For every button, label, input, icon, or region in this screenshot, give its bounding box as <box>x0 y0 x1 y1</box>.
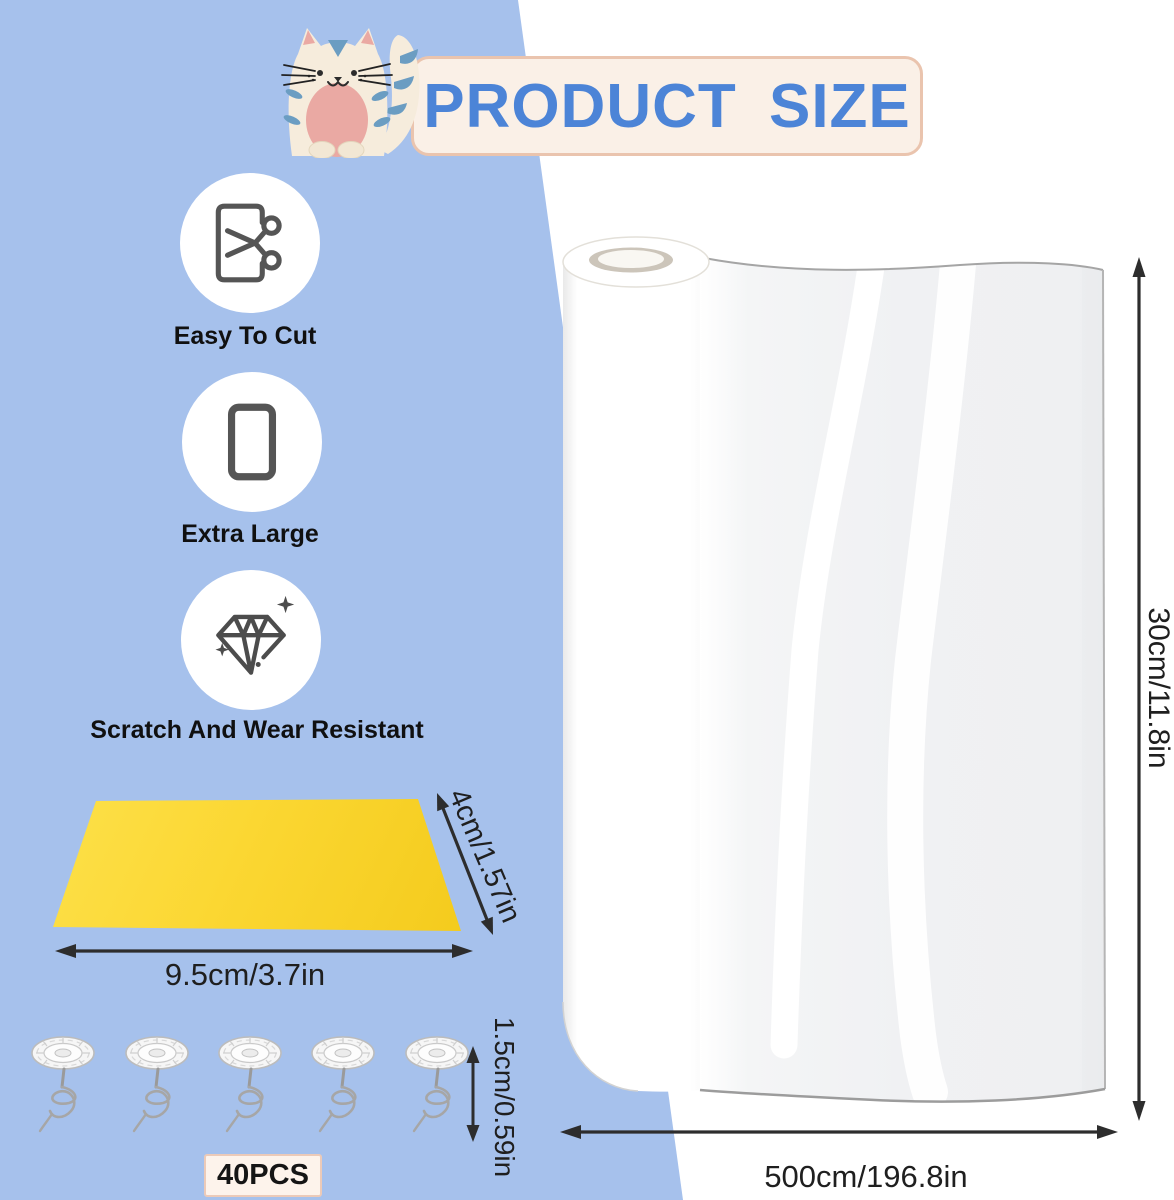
scissors-cut-icon <box>204 197 296 289</box>
push-pin <box>126 1037 188 1131</box>
feature-label-easy-to-cut: Easy To Cut <box>174 322 317 351</box>
roll-length-label: 500cm/196.8in <box>764 1159 967 1195</box>
push-pin <box>219 1037 281 1131</box>
push-pin <box>32 1037 94 1131</box>
feature-label-scratch-resistant: Scratch And Wear Resistant <box>90 716 423 745</box>
page-title: PRODUCT SIZE <box>423 71 911 142</box>
product-size-infographic: PRODUCT SIZE <box>0 0 1174 1200</box>
roll-top <box>563 237 709 287</box>
roll-height-label: 30cm/11.8in <box>1141 607 1174 768</box>
large-sheet-icon <box>206 396 298 488</box>
push-pin <box>312 1037 374 1131</box>
roll-core-hole <box>598 250 664 268</box>
pin-height-arrow <box>464 1044 482 1144</box>
roll-core-ring <box>589 248 673 273</box>
feature-label-extra-large: Extra Large <box>181 520 319 549</box>
pin-count-text: 40PCS <box>217 1159 309 1192</box>
feature-scratch-resistant <box>181 570 321 710</box>
blue-diagonal-panel <box>0 0 1174 1200</box>
pin-count-badge: 40PCS <box>204 1154 322 1197</box>
push-pins-group <box>28 1032 478 1150</box>
feature-easy-to-cut <box>180 173 320 313</box>
title-banner: PRODUCT SIZE <box>411 56 923 156</box>
squeegee-card <box>53 799 463 933</box>
cat-icon <box>280 16 442 158</box>
feature-extra-large <box>182 372 322 512</box>
push-pin <box>406 1037 468 1131</box>
roll-sheet <box>700 258 1105 1102</box>
pin-height-label: 1.5cm/0.59in <box>488 1017 520 1177</box>
diamond-sparkle-icon <box>203 592 299 688</box>
squeegee <box>53 799 463 933</box>
squeegee-length-label: 9.5cm/3.7in <box>165 957 325 993</box>
